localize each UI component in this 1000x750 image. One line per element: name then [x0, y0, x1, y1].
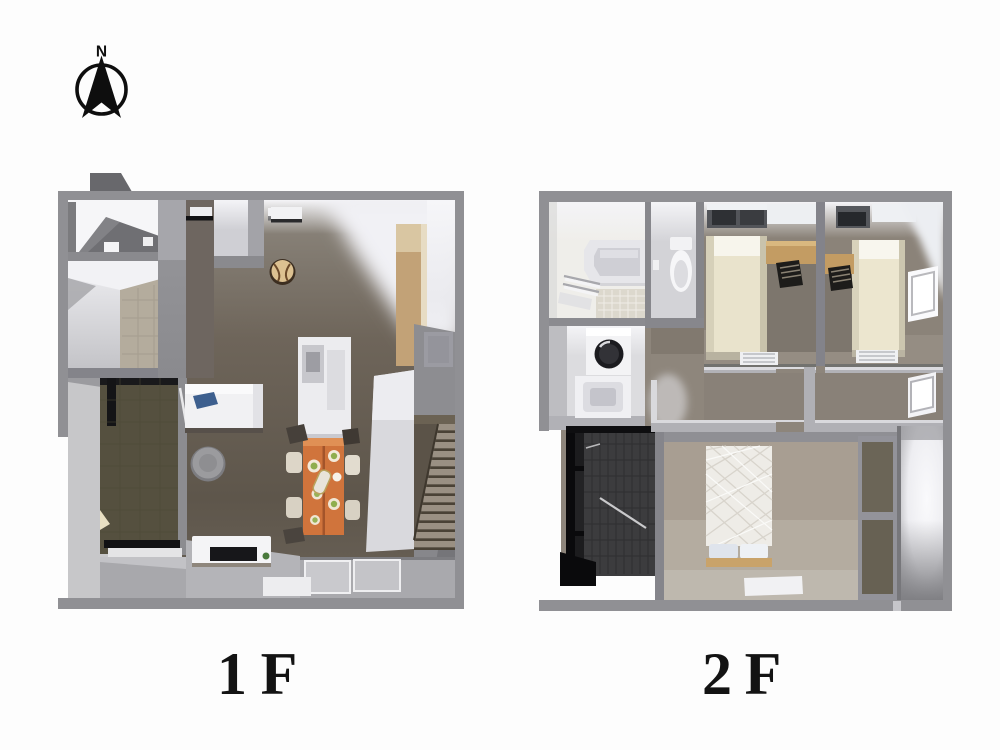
svg-text:1: 1 — [217, 641, 247, 707]
svg-text:N: N — [96, 44, 107, 61]
svg-text:F: F — [745, 641, 782, 707]
svg-text:F: F — [261, 641, 298, 707]
svg-text:2: 2 — [702, 641, 732, 707]
